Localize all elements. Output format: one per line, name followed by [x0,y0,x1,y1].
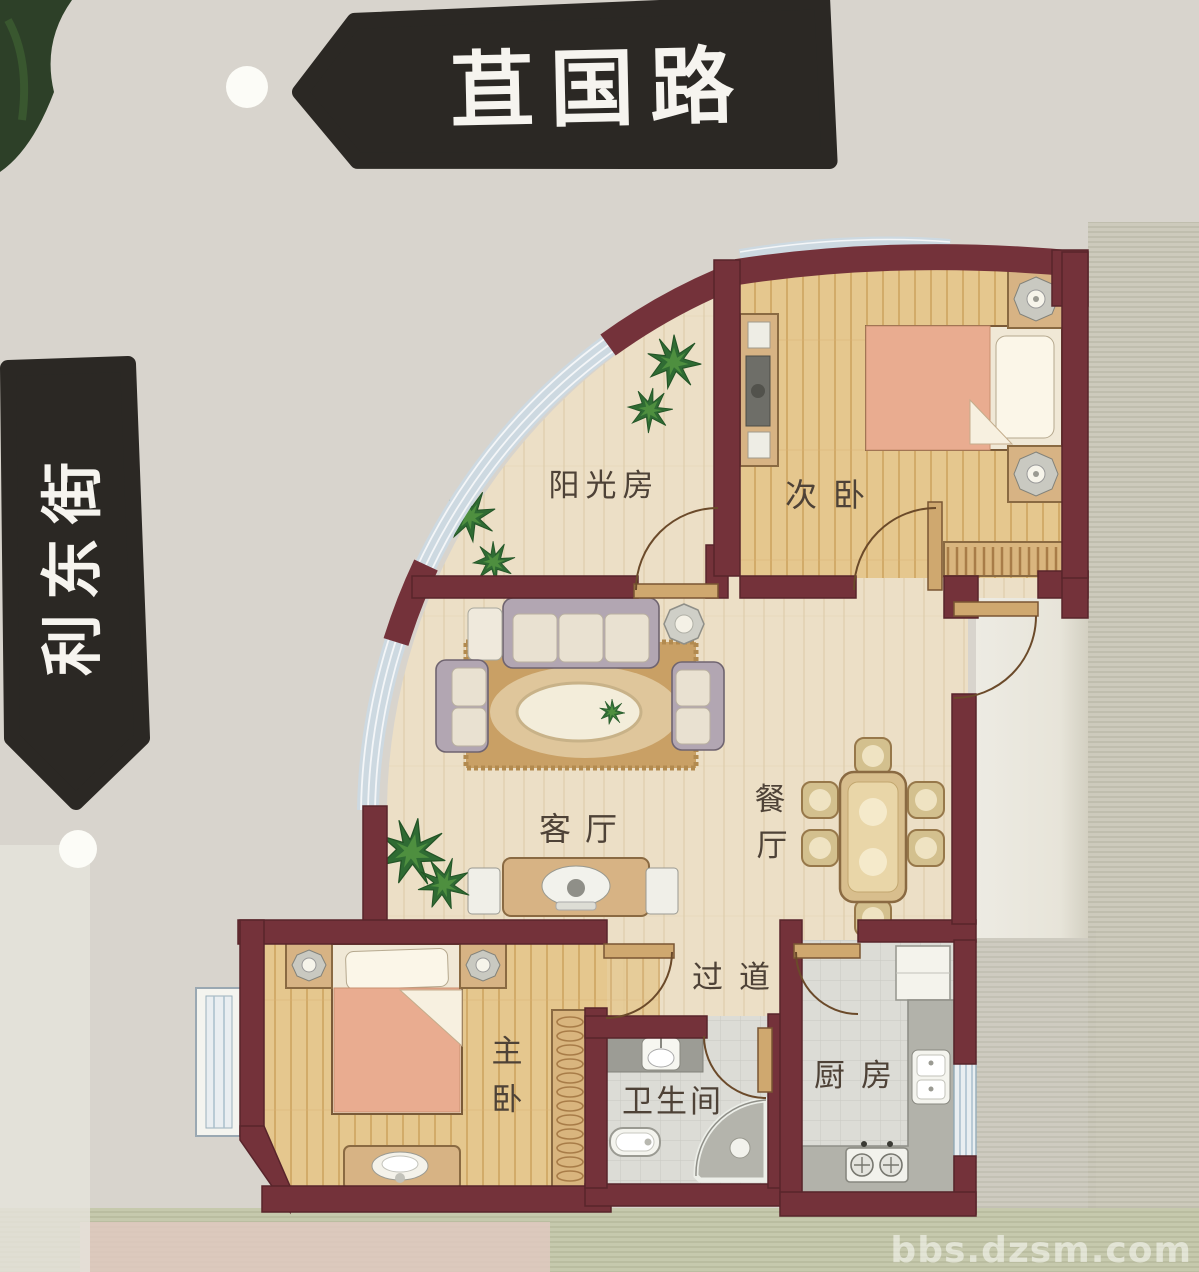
secondary-tv-cabinet [740,314,778,466]
dining-entry-divider-wall [952,694,976,924]
master-nightstand-left [286,942,332,988]
bathroom-bottom-wall [585,1184,790,1206]
svg-text:主: 主 [492,1034,523,1070]
top-wall [737,257,1078,272]
label-living-room: 客厅 [539,810,631,848]
street-sign-left: 利东街 [8,364,142,802]
bathtub [610,1128,660,1156]
street-sign-left-label: 利东街 [36,448,109,676]
kitchen-sink [912,1050,950,1104]
secondary-bedroom-right-wall [1062,252,1088,578]
watermark-text: bbs.dzsm.com [890,1230,1192,1271]
background-left-strip [0,845,90,1272]
floor-plan-canvas: 阳光房 次卧 客厅 餐 厅 过道 主 卧 卫生间 厨房 苴国路 利东街 bbs.… [0,0,1199,1272]
marker-dot-left [59,830,97,868]
street-sign-top-label: 苴国路 [449,37,751,141]
entry-hall-floor [976,598,1088,938]
svg-text:厅: 厅 [757,828,788,864]
bathroom-door-panel [758,1028,772,1092]
entry-door-panel [954,602,1038,616]
toilet [642,1038,680,1070]
secondary-bedroom-door-panel [928,502,942,590]
sunroom-door-panel [634,584,718,598]
background-pink-strip [80,1222,550,1272]
master-bottom-wall [262,1186,611,1212]
sunroom-wall [412,576,638,598]
secondary-bed-pillow [996,336,1054,438]
kitchen-window [954,1060,976,1158]
label-sunroom: 阳光房 [549,468,660,504]
speaker-right [646,868,678,914]
living-bottom-wall [238,920,607,944]
label-bathroom: 卫生间 [622,1084,724,1120]
kitchen-bottom-wall [780,1192,976,1216]
master-door-panel [604,944,674,958]
street-sign-top: 苴国路 [298,1,829,172]
master-left-wall [240,920,264,1136]
secondary-nightstand-bottom [1008,446,1064,502]
bathroom-top-wall [585,1016,707,1038]
label-secondary-bedroom: 次卧 [785,476,881,514]
side-table-left [468,608,502,660]
label-kitchen: 厨房 [814,1058,908,1094]
sunroom-bedroom-divider [714,260,740,576]
speaker-left [468,868,500,914]
master-nightstand-right [460,942,506,988]
kitchen-door-panel [794,944,860,958]
svg-text:餐: 餐 [755,782,786,818]
master-dresser [344,1146,460,1190]
floor-plan-photo: 阳光房 次卧 客厅 餐 厅 过道 主 卧 卫生间 厨房 苴国路 利东街 bbs.… [0,0,1199,1272]
svg-text:卧: 卧 [492,1082,523,1118]
corner-lamp-table [664,604,704,644]
master-wardrobe [552,1010,588,1188]
kitchen-right-wall-upper [954,940,976,1064]
secondary-bedroom-bottom-wall [740,576,856,598]
master-bay-window [196,988,242,1136]
arc-bottom-wall [363,806,387,938]
master-bed-pillow [345,948,448,990]
label-corridor: 过道 [692,960,786,996]
marker-dot-top [226,66,268,108]
